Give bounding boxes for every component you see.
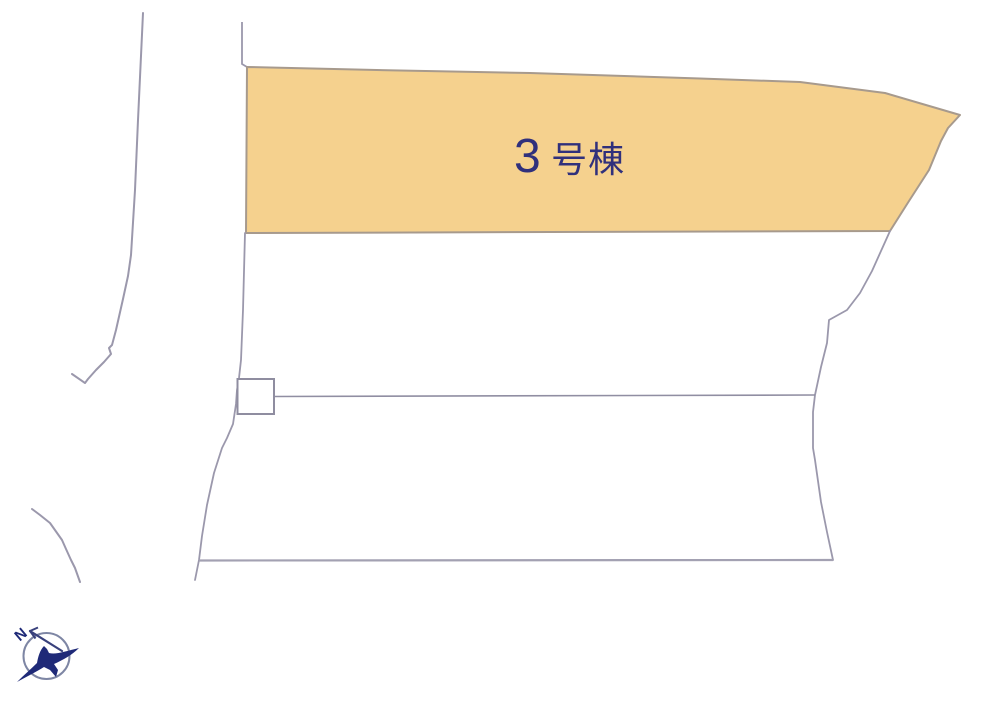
road-line-left-upper: [72, 13, 143, 383]
lot-3-label-number: 3: [514, 130, 542, 183]
bird-silhouette-icon: [17, 646, 79, 682]
site-plan-canvas: 3 号棟 N: [0, 0, 1000, 706]
plot-right-boundary: [813, 231, 890, 560]
utility-box: [238, 379, 275, 414]
north-compass: N: [11, 625, 79, 682]
lot-3-label-suffix: 号棟: [551, 139, 625, 180]
bottom-boundary-line: [199, 560, 833, 561]
road-line-left-lower: [32, 509, 80, 582]
plot-top-notch-line: [242, 22, 247, 67]
middle-divider-line: [274, 395, 815, 397]
site-plan-drawing: 3 号棟 N: [0, 0, 1000, 706]
